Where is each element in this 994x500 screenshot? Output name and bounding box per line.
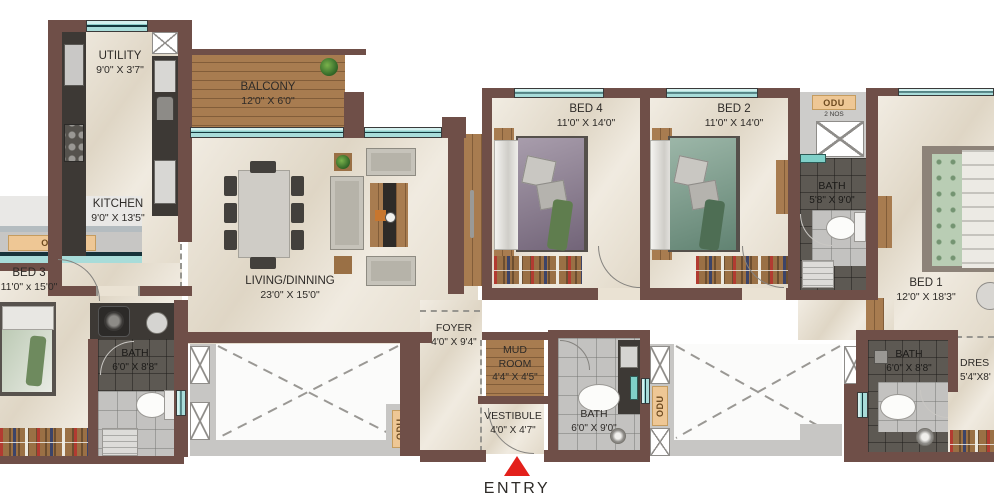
room-dims: 9'0" X 13'5" <box>60 212 176 226</box>
master-bath-shower <box>802 260 834 288</box>
room-name: BATH <box>870 348 948 362</box>
odu-tag-top-right: ODU <box>812 95 856 110</box>
dress-label: DRES 5'4"X8' <box>960 357 994 384</box>
side-table <box>334 256 352 274</box>
bed4-nightstand <box>494 128 514 140</box>
dress-opening-dashed <box>956 336 994 338</box>
wall <box>482 88 492 290</box>
wall <box>478 396 548 404</box>
wall <box>548 330 648 338</box>
wall <box>0 456 184 464</box>
room-dims: 11'0" X 14'0" <box>526 117 646 131</box>
shaft-xbox <box>190 402 210 440</box>
void-left-window <box>176 390 186 416</box>
master-bath-door-panel <box>878 196 892 248</box>
room-name: VESTIBULE <box>478 410 548 424</box>
room-dims: 9'0" X 3'7" <box>62 64 178 78</box>
wall <box>544 450 650 462</box>
void-right-window <box>641 378 650 404</box>
room-name: BED 4 <box>526 102 646 117</box>
dining-chair <box>291 176 304 196</box>
dining-chair <box>250 161 276 173</box>
bed4-window <box>514 88 604 98</box>
bed1-bath-window <box>857 392 868 418</box>
room-name: LIVING/DINNING <box>230 274 350 289</box>
odu-tag-void-right: ODU <box>652 386 668 426</box>
room-dims: 4'0" X 4'7" <box>478 424 548 437</box>
room-dims: 6'0" X 8'8" <box>870 362 948 375</box>
bed3-bath-label: BATH 6'0" X 8'8" <box>98 347 172 374</box>
bed4-headboard-pillows <box>494 140 520 250</box>
sofa-bottom <box>366 256 416 286</box>
shaft-xbox <box>650 346 670 384</box>
room-name: BATH <box>98 347 172 361</box>
room-dims: 5'8" X 9'0" <box>798 194 866 207</box>
common-bath-glass <box>630 376 638 400</box>
room-dims: 23'0" X 15'0" <box>230 289 350 303</box>
entry-label: ENTRY <box>462 480 572 498</box>
living-label: LIVING/DINNING 23'0" X 15'0" <box>230 274 350 303</box>
shaft-xbox <box>190 346 210 384</box>
void-left-x-lines <box>216 344 400 440</box>
balcony-plant-icon <box>320 58 338 76</box>
room-name: BED 2 <box>674 102 794 117</box>
room-name: UTILITY <box>62 49 178 64</box>
sofa-top <box>366 148 416 176</box>
room-name: BED 3 <box>0 266 88 281</box>
room-name: BATH <box>556 408 632 422</box>
room-dims: 4'4" X 4'5" <box>488 371 542 384</box>
bed2-label: BED 2 11'0" X 14'0" <box>674 102 794 131</box>
wall <box>420 450 486 462</box>
room-dims: 6'0" X 9'0" <box>556 422 632 435</box>
wall <box>448 120 464 294</box>
dining-chair <box>291 230 304 250</box>
wall <box>866 88 878 300</box>
bed4-wardrobe <box>494 256 582 284</box>
bed3-wardrobe <box>0 428 90 456</box>
balcony-window <box>190 127 344 138</box>
floor-plan: ODU ODU 2 NOS <box>0 0 994 500</box>
bed3-pillows <box>2 306 54 330</box>
dining-chair <box>250 257 276 269</box>
vestibule-label: VESTIBULE 4'0" X 4'7" <box>478 410 548 437</box>
room-dims: 11'0" x 15'0" <box>0 281 88 295</box>
stove-icon <box>64 124 84 162</box>
kitchen-living-opening <box>180 244 182 288</box>
bed4-label: BED 4 11'0" X 14'0" <box>526 102 646 131</box>
wall <box>344 92 364 138</box>
common-bath-label: BATH 6'0" X 9'0" <box>556 408 632 435</box>
kitchen-door-opening <box>96 286 140 296</box>
wall <box>548 330 558 456</box>
room-name: BALCONY <box>210 80 326 95</box>
wall <box>856 330 952 340</box>
bed1-bath-drain-icon <box>916 428 934 446</box>
utility-window <box>86 20 148 32</box>
entry-arrow-icon <box>504 456 530 476</box>
shaft-xbox-odu <box>816 121 864 157</box>
dining-table <box>238 170 290 258</box>
sofa-side <box>330 176 364 250</box>
common-bath-sink-icon <box>620 346 638 368</box>
void-right-step <box>800 424 842 456</box>
room-dims: 12'0" X 6'0" <box>210 95 326 109</box>
plant-icon <box>336 155 350 169</box>
bed1-blanket-green <box>932 154 964 266</box>
odu-count-label: 2 NOS <box>812 111 856 119</box>
wall <box>482 332 548 340</box>
wall <box>844 452 994 462</box>
bed3-bath-sink-icon <box>146 312 168 334</box>
washing-machine2-drum <box>104 311 124 331</box>
decor-bowl <box>385 212 396 223</box>
dining-chair <box>291 203 304 223</box>
room-dims: 12'0" X 18'3" <box>856 291 994 305</box>
dining-chair <box>224 176 237 196</box>
kitchen-label: KITCHEN 9'0" X 13'5" <box>60 197 176 226</box>
room-dims: 5'4"X8' <box>960 371 994 384</box>
room-name: DRES <box>960 357 994 371</box>
room-dims: 4'0" X 9'4" <box>422 336 486 349</box>
foyer-opening-dashed <box>420 310 480 312</box>
wall <box>182 332 432 343</box>
wall <box>174 300 188 457</box>
bed1-duvet <box>962 150 994 268</box>
wall <box>400 338 420 456</box>
wall <box>188 49 366 55</box>
dining-chair <box>224 230 237 250</box>
mud-room-label: MUD ROOM 4'4" X 4'5" <box>488 344 542 384</box>
dining-chair <box>224 203 237 223</box>
master-bath-toilet-tank <box>854 212 866 242</box>
bed1-bath-label: BATH 6'0" X 8'8" <box>870 348 948 375</box>
bed3-bath-shower <box>102 428 138 456</box>
foyer-label: FOYER 4'0" X 9'4" <box>422 322 486 349</box>
room-name: KITCHEN <box>60 197 176 212</box>
master-bath-window <box>800 154 826 163</box>
wall <box>88 339 98 457</box>
bed2-side-panel <box>776 160 788 214</box>
bed4-door-opening <box>598 288 640 300</box>
wardrobe-handle <box>470 190 474 238</box>
living-window <box>364 127 442 138</box>
wall <box>948 330 958 392</box>
room-name: MUD ROOM <box>488 344 542 371</box>
room-dims: 6'0" X 8'8" <box>98 361 172 374</box>
room-name: BED 1 <box>856 276 994 291</box>
room-dims: 11'0" X 14'0" <box>674 117 794 131</box>
room-name: BATH <box>798 180 866 194</box>
shaft-xbox <box>650 428 670 456</box>
wall <box>48 20 62 296</box>
room-name: FOYER <box>422 322 486 336</box>
bed2-window <box>666 88 758 98</box>
bed1-bath-toilet-icon <box>880 394 916 420</box>
utility-label: UTILITY 9'0" X 3'7" <box>62 49 178 78</box>
bed2-door-opening <box>742 288 786 300</box>
bed1-label: BED 1 12'0" X 18'3" <box>856 276 994 305</box>
bed1-window <box>898 88 994 96</box>
balcony-label: BALCONY 12'0" X 6'0" <box>210 80 326 109</box>
bed3-label: BED 3 11'0" x 15'0" <box>0 266 88 295</box>
master-bath-label: BATH 5'8" X 9'0" <box>798 180 866 207</box>
